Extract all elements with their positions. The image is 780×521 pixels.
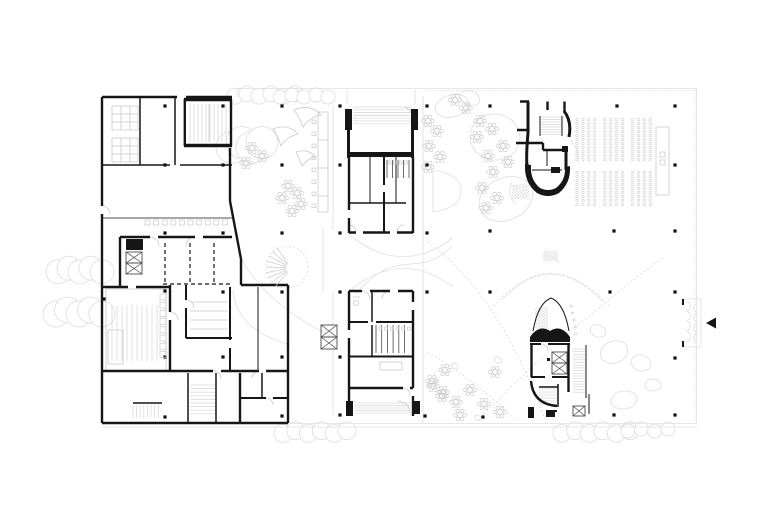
south-stair-core xyxy=(346,291,420,416)
canopy-outline xyxy=(103,89,697,428)
small-dot-row xyxy=(570,305,577,335)
shaft-boxes xyxy=(126,252,585,416)
stage-rect xyxy=(656,127,669,195)
upper-lens-core xyxy=(516,102,570,197)
entrance-arrow-icon xyxy=(706,318,716,329)
floor-plan-page xyxy=(0,0,780,521)
auditorium-seating xyxy=(576,118,652,206)
entrance-vestibule xyxy=(683,299,701,347)
north-stair-core xyxy=(345,109,418,233)
fan-stair xyxy=(266,248,288,288)
floor-plan-canvas xyxy=(0,0,780,521)
circulation-curves xyxy=(233,140,662,420)
